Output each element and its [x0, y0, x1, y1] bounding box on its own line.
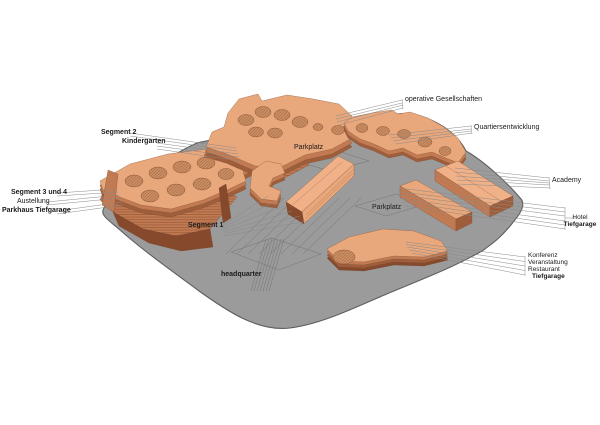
label-parkhaus-tiefgarage: Parkhaus Tiefgarage — [2, 207, 71, 215]
label-konferenz-block: Konferenz Veranstaltung Restaurant Tiefg… — [528, 252, 568, 280]
label-segment-2: Segment 2 — [101, 129, 136, 137]
label-parkplatz-north: Parkplatz — [294, 144, 323, 152]
label-restaurant: Restaurant — [528, 266, 568, 273]
label-konferenz: Konferenz — [528, 252, 568, 259]
label-headquarter: headquarter — [221, 271, 261, 279]
label-hotel: Hotel — [562, 214, 598, 221]
label-operative-gesellschaften: operative Gesellschaften — [405, 96, 482, 104]
label-austellung: Austellung — [17, 198, 50, 206]
label-hotel-tiefgarage: Tiefgarage — [562, 221, 598, 228]
label-parkplatz-east: Parkplatz — [372, 204, 401, 212]
label-veranstaltung: Veranstaltung — [528, 259, 568, 266]
site-plan-svg — [0, 0, 600, 425]
label-segment-1: Segment 1 — [188, 222, 223, 230]
label-kindergarten: Kindergarten — [122, 138, 166, 146]
label-konferenz-tiefgarage: Tiefgarage — [528, 273, 568, 280]
label-hotel-block: Hotel Tiefgarage — [562, 214, 598, 228]
label-segment-3-und-4: Segment 3 und 4 — [11, 189, 67, 197]
label-academy: Academy — [552, 177, 581, 185]
label-quartiersentwicklung: Quartiersentwicklung — [474, 124, 539, 132]
site-axonometric-diagram: Segment 2 Kindergarten Segment 3 und 4 A… — [0, 0, 600, 425]
